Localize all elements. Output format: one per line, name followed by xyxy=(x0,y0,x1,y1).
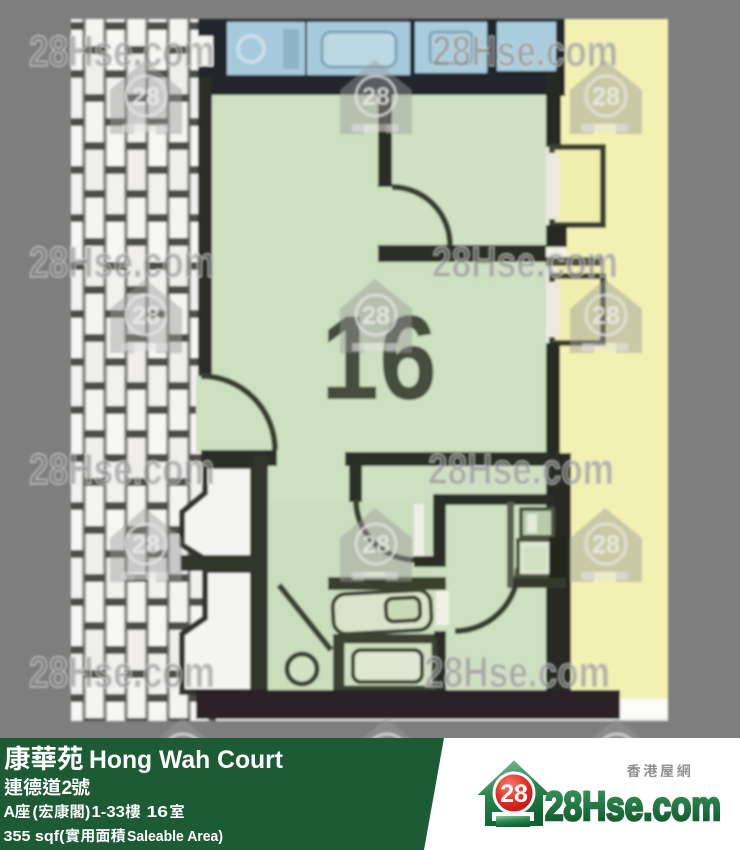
svg-text:355 sqf(: 355 sqf( xyxy=(4,828,65,845)
svg-text:1-33: 1-33 xyxy=(92,804,125,821)
svg-text:28Hse.com: 28Hse.com xyxy=(29,238,215,287)
svg-text:28Hse.com: 28Hse.com xyxy=(432,238,618,287)
svg-text:28Hse.com: 28Hse.com xyxy=(428,445,614,494)
svg-text:28Hse.com: 28Hse.com xyxy=(29,27,215,76)
svg-text:(: ( xyxy=(33,804,39,821)
svg-text:28Hse.com: 28Hse.com xyxy=(29,648,215,697)
svg-text:Hong Wah Court: Hong Wah Court xyxy=(89,746,284,774)
svg-text:A: A xyxy=(4,804,16,821)
svg-text:): ) xyxy=(85,804,90,821)
svg-text:2: 2 xyxy=(62,778,73,799)
svg-text:28Hse.com: 28Hse.com xyxy=(432,27,618,76)
svg-text:28Hse.com: 28Hse.com xyxy=(545,783,721,829)
svg-text:28: 28 xyxy=(500,780,528,808)
svg-text:Saleable Area): Saleable Area) xyxy=(127,828,223,845)
svg-text:28Hse.com: 28Hse.com xyxy=(424,648,610,697)
svg-text:28Hse.com: 28Hse.com xyxy=(29,445,215,494)
svg-text:16: 16 xyxy=(147,804,169,821)
